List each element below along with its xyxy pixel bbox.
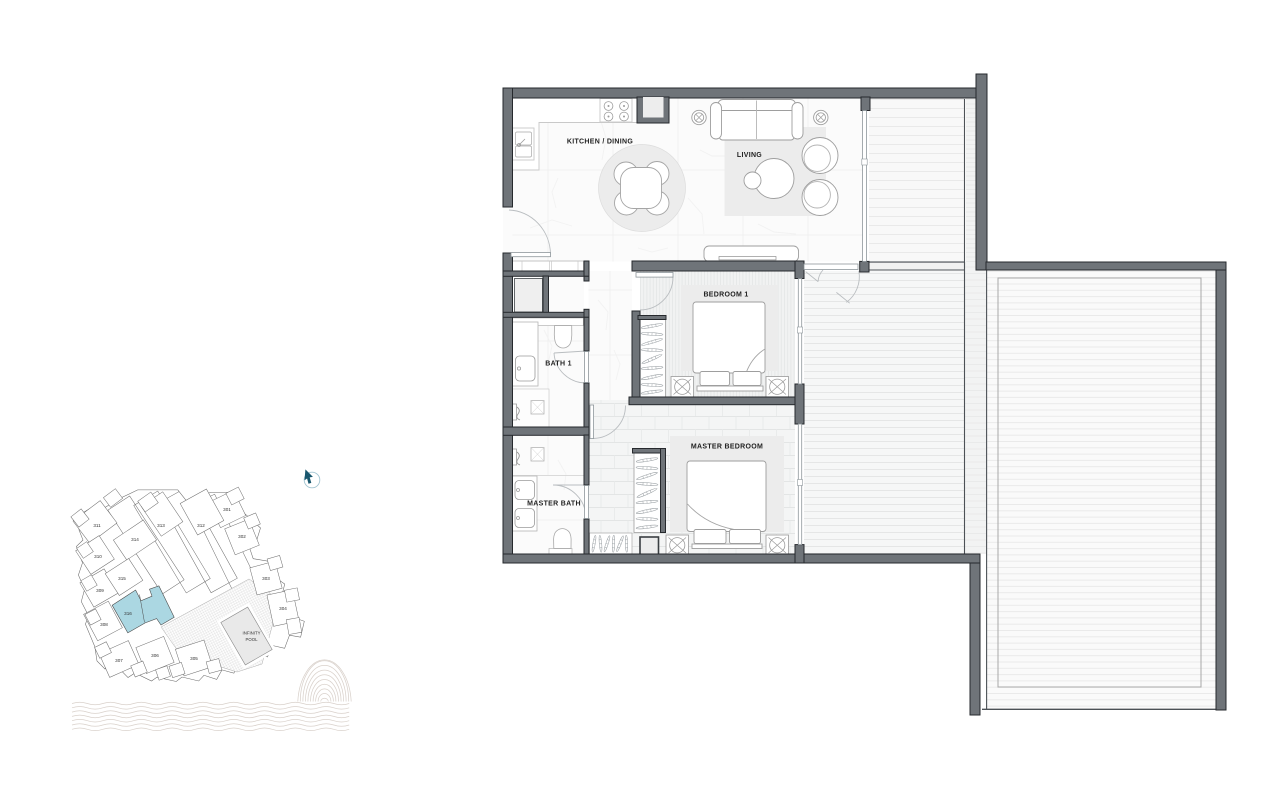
svg-text:BATH 1: BATH 1 xyxy=(545,361,572,368)
svg-text:316: 316 xyxy=(124,611,132,616)
svg-text:311: 311 xyxy=(93,523,101,528)
svg-text:POOL: POOL xyxy=(246,637,259,642)
svg-text:313: 313 xyxy=(157,523,165,528)
svg-text:LIVING: LIVING xyxy=(737,152,762,159)
svg-text:309: 309 xyxy=(96,588,104,593)
svg-text:304: 304 xyxy=(279,606,287,611)
svg-text:MASTER BEDROOM: MASTER BEDROOM xyxy=(691,444,763,451)
svg-text:305: 305 xyxy=(190,656,198,661)
svg-text:307: 307 xyxy=(115,658,123,663)
svg-text:MASTER BATH: MASTER BATH xyxy=(527,501,581,508)
svg-text:312: 312 xyxy=(197,523,205,528)
svg-text:301: 301 xyxy=(223,507,231,512)
svg-text:308: 308 xyxy=(100,622,108,627)
svg-text:306: 306 xyxy=(151,653,159,658)
svg-text:314: 314 xyxy=(131,537,139,542)
svg-text:315: 315 xyxy=(118,576,126,581)
svg-text:BEDROOM 1: BEDROOM 1 xyxy=(703,292,748,299)
svg-text:302: 302 xyxy=(238,534,246,539)
svg-text:310: 310 xyxy=(94,554,102,559)
svg-text:303: 303 xyxy=(262,576,270,581)
svg-text:KITCHEN / DINING: KITCHEN / DINING xyxy=(567,139,633,146)
svg-text:INFINITY: INFINITY xyxy=(243,631,261,636)
